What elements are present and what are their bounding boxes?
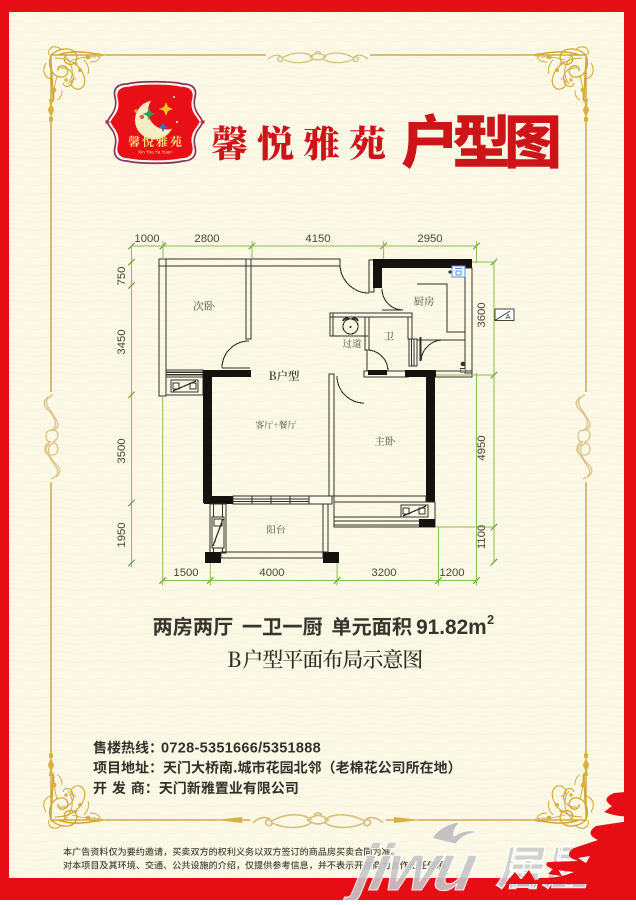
svg-text:1500: 1500 (173, 567, 198, 579)
svg-text:1100: 1100 (476, 525, 488, 549)
svg-text:3200: 3200 (371, 567, 396, 579)
svg-text:3450: 3450 (116, 329, 128, 354)
svg-text:1200: 1200 (439, 567, 464, 579)
svg-text:2: 2 (487, 613, 494, 627)
svg-text:1000: 1000 (134, 233, 159, 245)
svg-text:750: 750 (116, 267, 128, 286)
svg-text:2800: 2800 (194, 233, 219, 245)
svg-text:3500: 3500 (116, 438, 128, 463)
svg-text:4950: 4950 (476, 435, 488, 460)
svg-text:4150: 4150 (305, 233, 330, 245)
svg-text:jiwu: jiwu (341, 832, 483, 900)
svg-text:91.82m: 91.82m (416, 616, 487, 639)
svg-text:3600: 3600 (476, 302, 488, 327)
svg-text:0728-5351666/5351888: 0728-5351666/5351888 (161, 741, 321, 757)
svg-text:A: A (505, 312, 510, 321)
svg-text:Xin Yue Ya Yuan: Xin Yue Ya Yuan (138, 150, 172, 155)
svg-text:2950: 2950 (417, 233, 442, 245)
svg-text:4000: 4000 (259, 567, 284, 579)
svg-text:1950: 1950 (116, 522, 128, 547)
